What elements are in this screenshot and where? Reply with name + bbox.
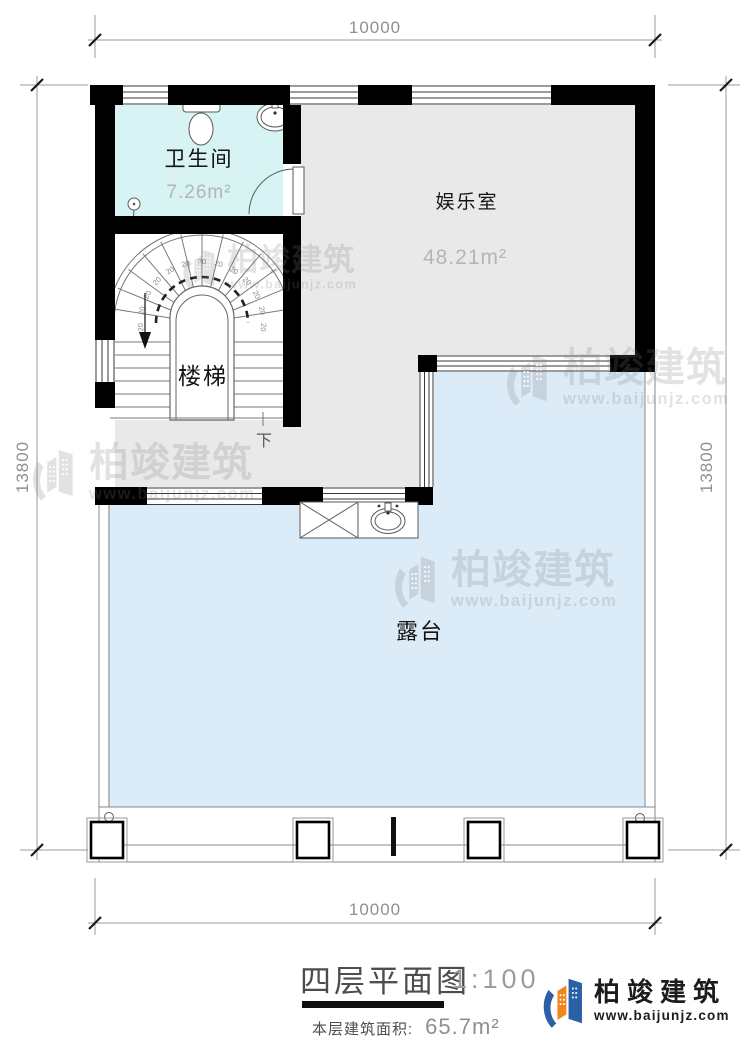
plan-title: 四层平面图 bbox=[300, 964, 470, 999]
floor-area-label: 本层建筑面积: bbox=[312, 1018, 413, 1039]
railing-post-circle-left bbox=[105, 813, 114, 822]
window-entertainment-south bbox=[437, 355, 610, 372]
company-url: www.baijunjz.com bbox=[594, 1009, 730, 1023]
title-underline bbox=[302, 1001, 444, 1008]
bathroom-area-label: 7.26m² bbox=[166, 182, 231, 203]
window-top-3 bbox=[412, 85, 551, 105]
floor-area-value: 65.7m² bbox=[425, 1014, 499, 1040]
dim-bottom-value: 10000 bbox=[349, 900, 401, 919]
window-corridor-1 bbox=[147, 487, 262, 505]
window-top-1 bbox=[123, 85, 168, 105]
stairs-direction-label: 下 bbox=[256, 433, 272, 450]
entertainment-area-label: 48.21m² bbox=[423, 246, 507, 269]
terrace-counter bbox=[300, 502, 358, 538]
floor-area-row: 本层建筑面积: 65.7m² bbox=[312, 1014, 500, 1040]
terrace-sink-icon bbox=[358, 502, 418, 538]
svg-text:20: 20 bbox=[259, 323, 269, 332]
dimension-left: 13800 bbox=[13, 76, 88, 860]
dimension-right: 13800 bbox=[668, 76, 740, 860]
railing-center-mark bbox=[391, 817, 396, 856]
dim-right-value: 13800 bbox=[697, 441, 716, 493]
plan-scale: 1:100 bbox=[452, 964, 540, 995]
svg-text:20: 20 bbox=[257, 306, 268, 316]
company-name: 柏竣建筑 bbox=[594, 979, 730, 1005]
stairs-label: 楼梯 bbox=[178, 363, 228, 389]
entertainment-label: 娱乐室 bbox=[435, 191, 498, 213]
dim-left-value: 13800 bbox=[13, 441, 32, 493]
dim-top-value: 10000 bbox=[349, 18, 401, 37]
window-top-2 bbox=[290, 85, 358, 105]
window-left bbox=[95, 340, 115, 382]
stair-newel bbox=[170, 286, 234, 420]
plan-drawing: 20202020202020202020202020 bbox=[0, 0, 750, 945]
company-logo-icon bbox=[540, 972, 586, 1030]
svg-text:20: 20 bbox=[198, 257, 206, 266]
terrace-columns bbox=[87, 817, 663, 862]
floor-plan-canvas: 20202020202020202020202020 bbox=[0, 0, 750, 1053]
bathroom-label: 卫生间 bbox=[165, 148, 234, 171]
dimension-bottom: 10000 bbox=[88, 878, 662, 935]
terrace-label: 露台 bbox=[396, 619, 444, 644]
window-vertical-strip bbox=[419, 372, 434, 487]
dimension-top: 10000 bbox=[88, 15, 662, 58]
svg-text:20: 20 bbox=[136, 323, 146, 332]
company-logo: 柏竣建筑 www.baijunjz.com bbox=[540, 972, 730, 1030]
title-block: 四层平面图 bbox=[300, 956, 470, 1001]
